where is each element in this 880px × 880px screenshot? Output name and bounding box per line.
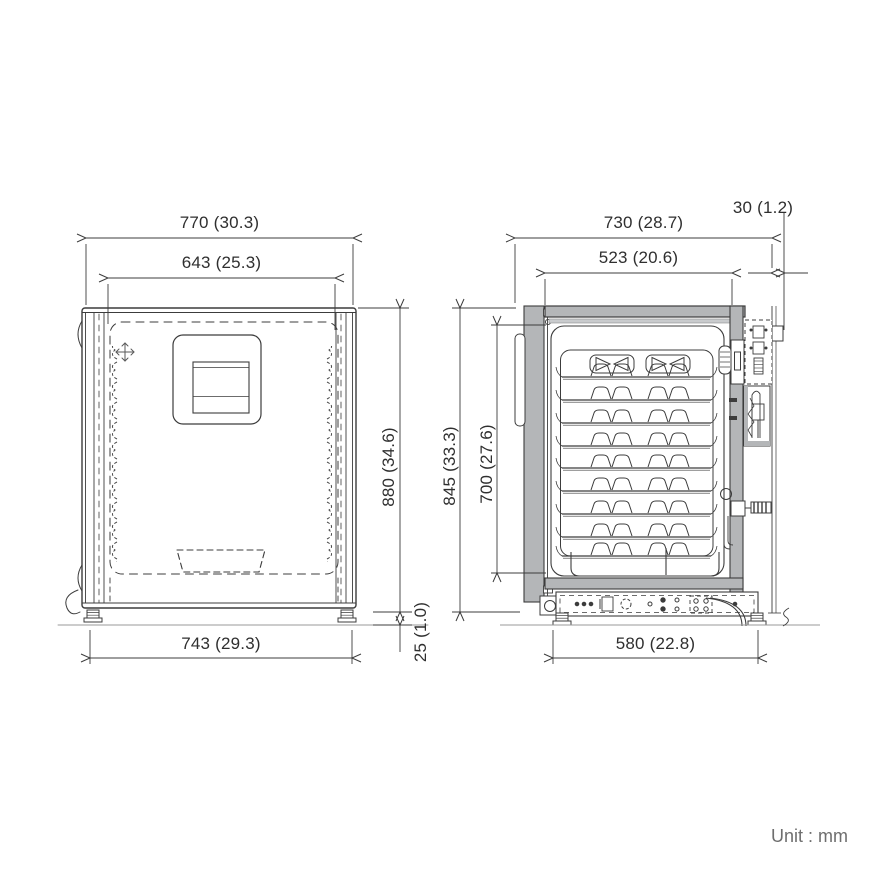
- front-feet: [84, 610, 356, 622]
- door-gasket-right: [325, 346, 337, 562]
- front-view-drawing: [58, 308, 428, 625]
- floor-break-mark: [783, 608, 789, 626]
- dim-front-foot-height: 25 (1.0): [411, 587, 431, 677]
- side-base-unit: [540, 592, 766, 626]
- dim-side-rear-protrusion: 30 (1.2): [715, 198, 811, 218]
- rear-protrusion: [772, 326, 783, 341]
- dim-front-overall-height: 880 (34.6): [379, 422, 399, 512]
- drain-hook: [66, 590, 80, 614]
- front-control-panel: [173, 335, 261, 424]
- dim-front-overall-width: 770 (30.3): [86, 213, 353, 233]
- dim-side-body-height: 845 (33.3): [440, 421, 460, 511]
- dim-side-interior-depth: 523 (20.6): [545, 248, 732, 268]
- top-wall: [545, 306, 745, 317]
- side-rear-components: [719, 320, 772, 549]
- door-gasket-left: [111, 346, 123, 562]
- chamber-liner: [551, 326, 724, 576]
- unit-note: Unit : mm: [700, 826, 848, 847]
- fan-unit: [744, 386, 770, 446]
- side-door: [515, 306, 553, 602]
- front-hinges: [66, 321, 82, 614]
- dim-side-interior-height: 700 (27.6): [477, 419, 497, 509]
- dim-front-base-width: 743 (29.3): [90, 634, 352, 654]
- dim-front-door-width: 643 (25.3): [108, 253, 335, 273]
- side-interior: [551, 326, 724, 576]
- door-handle: [515, 334, 525, 426]
- side-view-drawing: [500, 306, 820, 626]
- bottom-wall: [545, 578, 743, 589]
- technical-drawing-page: 770 (30.3) 643 (25.3) 880 (34.6) 25 (1.0…: [0, 0, 880, 880]
- adjust-knob: [719, 346, 731, 374]
- dim-side-base-depth: 580 (22.8): [553, 634, 758, 654]
